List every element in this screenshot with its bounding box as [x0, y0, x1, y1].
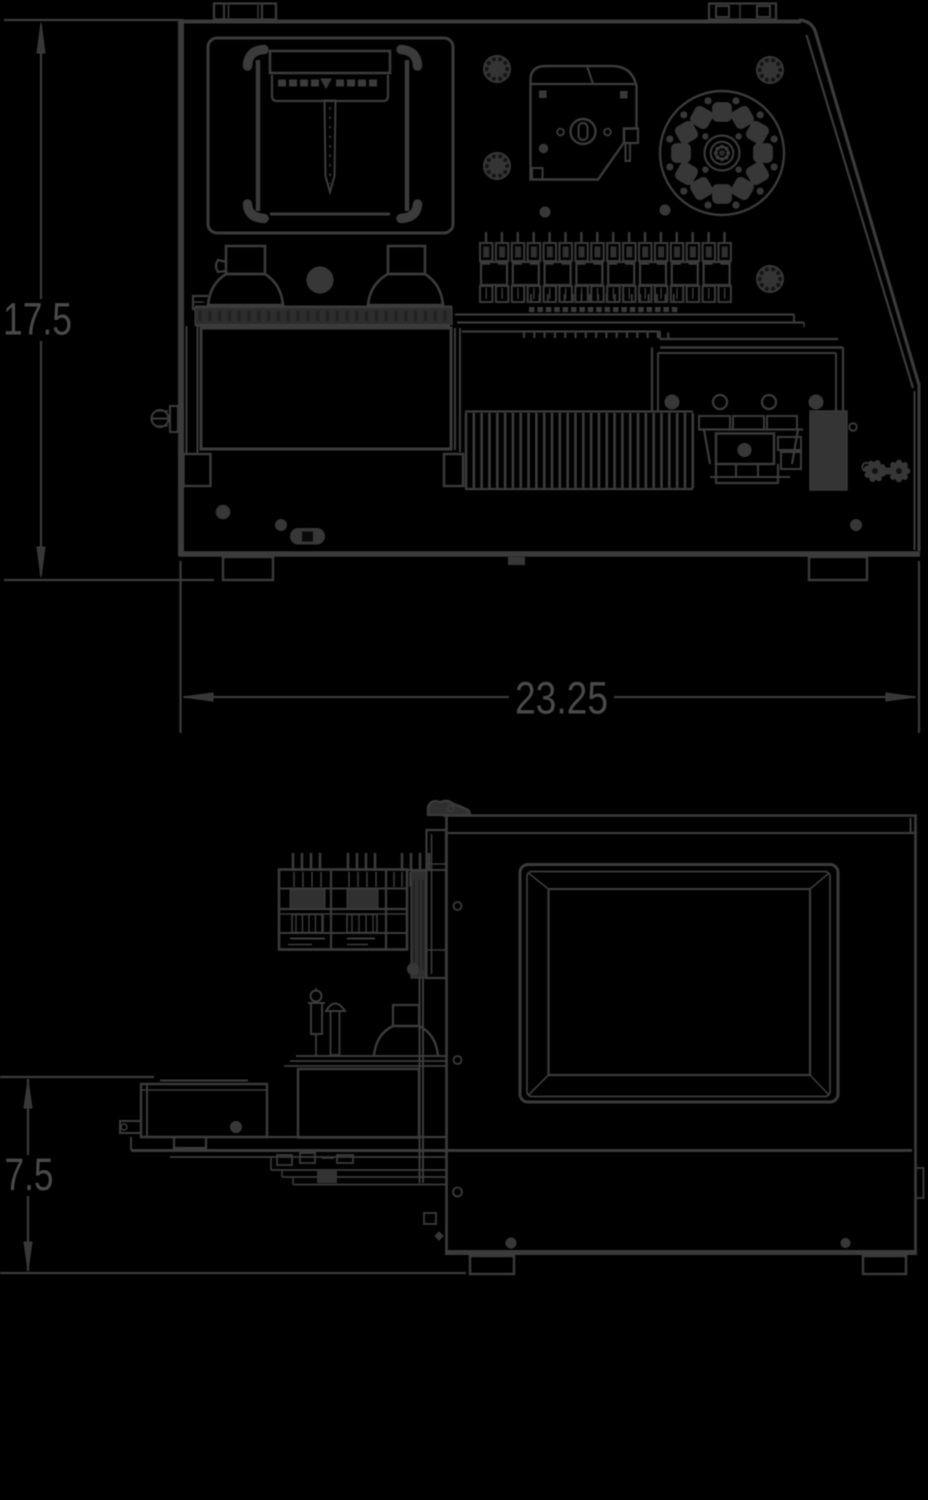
svg-text:17.5: 17.5 — [3, 294, 72, 345]
svg-text:23.25: 23.25 — [515, 673, 608, 724]
svg-text:7.5: 7.5 — [5, 1149, 54, 1200]
